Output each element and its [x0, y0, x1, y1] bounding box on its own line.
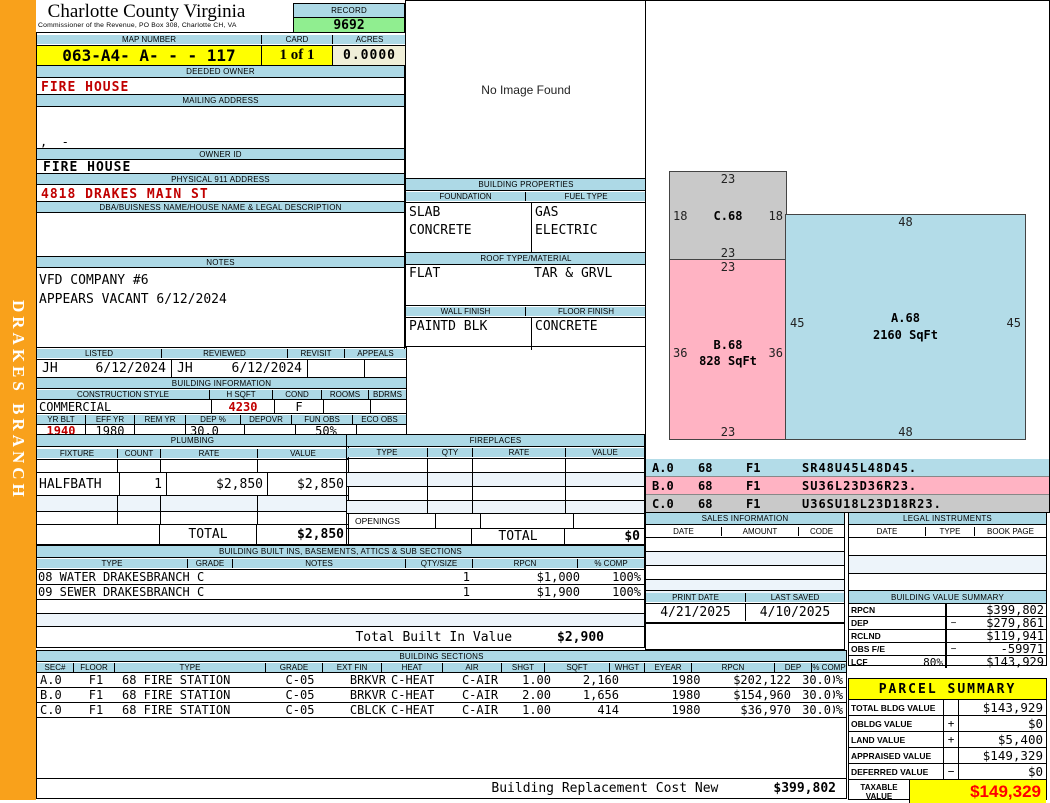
bvs-sign: [947, 604, 960, 616]
built-ins-empty-row: [37, 600, 644, 614]
sketch-a-sqft: 2160 SqFt: [873, 327, 938, 344]
blank-box: [645, 623, 845, 650]
parcel-value: $143,929: [959, 700, 1046, 715]
bs-rpcn: $202,122: [709, 673, 795, 687]
bvs-row: OBS F/E − -59971: [849, 643, 1046, 656]
bvs-label: DEP: [849, 617, 947, 629]
legend-row-a: A.0 68 F1 SR48U45L48D45.: [646, 459, 1049, 477]
dep-pct-label: DEP %: [186, 415, 241, 424]
bvs-row: DEP − $279,861: [849, 617, 1046, 630]
district-sidebar: DRAKES BRANCH: [0, 0, 36, 800]
legend-code: 68: [698, 461, 746, 475]
record-label: RECORD: [293, 3, 405, 18]
revisit-value: [308, 360, 365, 377]
plumbing-fixture: HALFBATH: [37, 473, 120, 495]
last-saved-value: 4/10/2025: [746, 604, 844, 621]
bs-eyear: 1980: [663, 688, 709, 702]
legend-sec: B.0: [646, 479, 698, 493]
wall-finish-label: WALL FINISH: [406, 307, 526, 316]
bs-header-dep: DEP: [775, 663, 812, 672]
bvs-sign: [947, 630, 960, 642]
bvs-label: RPCN: [849, 604, 947, 616]
plumbing-row: HALFBATH 1 $2,850 $2,850: [37, 473, 348, 496]
sketch-b-dim-left: 36: [673, 346, 687, 360]
parcel-row: OBLDG VALUE + $0: [849, 716, 1046, 732]
bs-header-floor: FLOOR: [74, 663, 115, 672]
parcel-sign: [944, 748, 959, 763]
bvs-value: $119,941: [960, 630, 1046, 642]
legal-empty-row: [849, 556, 1046, 574]
built-ins-total-value: $2,900: [557, 630, 644, 645]
notes-line-2: APPEARS VACANT 6/12/2024: [39, 290, 402, 309]
parcel-label: LAND VALUE: [849, 732, 944, 747]
parcel-label: DEFERRED VALUE: [849, 764, 944, 779]
legend-row-c: C.0 68 F1 U36SU18L23D18R23.: [646, 495, 1049, 512]
bs-shgt: 1.00: [509, 703, 555, 717]
mailing-address-value: , -: [40, 135, 69, 149]
sketch-a-name: A.68: [873, 310, 938, 327]
roof-type-value: FLAT: [406, 265, 531, 305]
cond-label: COND: [273, 390, 322, 399]
parcel-row: TOTAL BLDG VALUE $143,929: [849, 700, 1046, 716]
bvs-sign: −: [947, 643, 960, 655]
acres-label: ACRES: [333, 35, 406, 44]
fireplaces-empty-row: [347, 487, 644, 501]
foundation-label: FOUNDATION: [406, 192, 526, 201]
floor-finish-value: CONCRETE: [532, 318, 646, 350]
built-ins-row: 08 WATER DRAKESBRANCH C 1 $1,000 100%: [37, 570, 644, 585]
fireplaces-total-row: TOTAL $0: [347, 529, 644, 544]
built-ins-total-label: Total Built In Value: [355, 630, 512, 645]
review-section: LISTED REVIEWED REVISIT APPEALS JH 6/12/…: [36, 347, 407, 379]
plumbing-rate: $2,850: [167, 473, 268, 495]
bvs-row: LCF 80% $143,929: [849, 656, 1046, 668]
bs-sqft: 2,160: [555, 673, 629, 687]
bs-dep: 30.0: [795, 703, 833, 717]
bvs-value: -59971: [960, 643, 1046, 655]
parcel-summary-title: PARCEL SUMMARY: [849, 679, 1046, 700]
bs-sec: B.0: [37, 688, 76, 702]
legal-header-bookpage: BOOK PAGE: [975, 527, 1046, 536]
fireplaces-header-value: VALUE: [566, 448, 644, 457]
reviewed-by: JH: [177, 361, 193, 376]
commissioner-line: Commissioner of the Revenue, PO Box 308,…: [36, 22, 257, 29]
map-card-acres: MAP NUMBER CARD ACRES 063-A4- A- - - 117…: [36, 32, 407, 67]
mailing-address-label: MAILING ADDRESS: [36, 94, 405, 107]
building-sections-title: BUILDING SECTIONS: [37, 651, 846, 662]
plumbing-empty-row: [37, 512, 348, 525]
sales-header-code: CODE: [799, 527, 844, 536]
built-ins-empty-row: [37, 614, 644, 627]
sales-empty-row: [646, 566, 844, 580]
revisit-label: REVISIT: [288, 349, 345, 358]
built-ins-comp: 100%: [586, 585, 644, 599]
bs-row-c: C.0 F1 68 FIRE STATION C-05 CBLCK C-HEAT…: [37, 703, 846, 718]
built-ins-total-row: Total Built In Value $2,900: [37, 627, 644, 647]
legal-instruments-table: LEGAL INSTRUMENTS DATE TYPE BOOK PAGE: [848, 512, 1047, 592]
legal-empty-row: [849, 538, 1046, 556]
sketch-a-dim-top: 48: [898, 215, 912, 229]
bs-air: C-AIR: [451, 673, 509, 687]
sales-empty-row: [646, 538, 844, 552]
legend-floor: F1: [746, 479, 802, 493]
sketch-panel: 23 23 18 18 C.68 23 23 36 36 B.68 828 Sq…: [645, 0, 1050, 461]
building-sections-table: BUILDING SECTIONS SEC# FLOOR TYPE GRADE …: [36, 650, 847, 799]
card-value: 1 of 1: [262, 46, 333, 65]
physical-address-label: PHYSICAL 911 ADDRESS: [36, 173, 405, 185]
legend-code: 68: [698, 497, 746, 511]
legend-floor: F1: [746, 461, 802, 475]
map-number-label: MAP NUMBER: [37, 35, 262, 44]
bs-row-a: A.0 F1 68 FIRE STATION C-05 BRKVR C-HEAT…: [37, 673, 846, 688]
built-ins-header-grade: GRADE: [188, 559, 233, 568]
depovr-label: DEPOVR: [241, 415, 292, 424]
bs-comp: 100%: [833, 703, 846, 717]
wall-finish-value: PAINTD BLK: [406, 318, 532, 350]
dba-label: DBA/BUISNESS NAME/HOUSE NAME & LEGAL DES…: [36, 201, 405, 213]
hsqft-value: 4230: [212, 400, 275, 413]
fuel-value-2: ELECTRIC: [535, 222, 643, 240]
replacement-cost-row: Building Replacement Cost New $399,802: [37, 778, 846, 798]
fireplaces-title: FIREPLACES: [347, 435, 644, 447]
built-ins-rpcn: $1,000: [476, 570, 586, 584]
bs-header-comp: % COMP: [812, 663, 846, 672]
notes-line-1: VFD COMPANY #6: [39, 271, 402, 290]
bs-type: 68 FIRE STATION: [116, 673, 272, 687]
appeals-label: APPEALS: [345, 349, 406, 358]
bs-header-eyear: EYEAR: [645, 663, 692, 672]
bs-floor: F1: [76, 673, 116, 687]
sketch-a-dim-left: 45: [790, 316, 804, 330]
bs-comp: 100%: [833, 688, 846, 702]
sketch-c-dim-right: 18: [769, 209, 783, 223]
deeded-owner-section: DEEDED OWNER FIRE HOUSE: [36, 65, 405, 94]
built-ins-row: 09 SEWER DRAKESBRANCH C 1 $1,900 100%: [37, 585, 644, 600]
cond-value: F: [275, 400, 324, 413]
plumbing-table: PLUMBING FIXTURE COUNT RATE VALUE HALFBA…: [36, 434, 349, 545]
plumbing-total-label: TOTAL: [159, 525, 256, 544]
fireplaces-openings-label: OPENINGS: [347, 514, 436, 528]
bvs-sign: [947, 656, 960, 668]
fireplaces-total-label: TOTAL: [471, 529, 564, 544]
bs-floor: F1: [76, 703, 116, 717]
fireplaces-empty-row: [347, 501, 644, 515]
built-ins-qty: 1: [404, 585, 476, 599]
building-information-title: BUILDING INFORMATION: [37, 378, 406, 389]
fireplaces-total-value: $0: [564, 529, 644, 544]
fuel-value-1: GAS: [535, 204, 643, 222]
sketch-b-dim-bottom: 23: [721, 425, 735, 439]
legend-floor: F1: [746, 497, 802, 511]
building-properties-section: BUILDING PROPERTIES FOUNDATION FUEL TYPE…: [405, 178, 647, 347]
bs-extfin: CBLCK: [328, 703, 388, 717]
bs-shgt: 2.00: [509, 688, 555, 702]
bs-header-sec: SEC#: [37, 663, 74, 672]
plumbing-empty-row: [37, 496, 348, 512]
sales-empty-row: [646, 552, 844, 566]
bs-rpcn: $36,970: [709, 703, 795, 717]
print-info-table: PRINT DATE LAST SAVED 4/21/2025 4/10/202…: [645, 590, 845, 623]
built-ins-table: BUILDING BUILT INS, BASEMENTS, ATTICS & …: [36, 545, 645, 648]
bs-heat: C-HEAT: [388, 703, 451, 717]
sales-information-title: SALES INFORMATION: [646, 513, 844, 525]
parcel-sign: +: [944, 732, 959, 747]
plumbing-total-row: TOTAL $2,850: [37, 525, 348, 544]
county-title: Charlotte County Virginia: [36, 2, 257, 22]
sketch-b-dim-top: 23: [721, 260, 735, 274]
plumbing-value: $2,850: [268, 473, 348, 495]
sketch-section-a: 48 48 45 45 A.68 2160 SqFt: [785, 214, 1026, 440]
bvs-pct: 80%: [923, 656, 945, 668]
sketch-c-dim-bottom: 23: [721, 246, 735, 260]
parcel-row: APPRAISED VALUE $149,329: [849, 748, 1046, 764]
bvs-value: $279,861: [960, 617, 1046, 629]
image-panel: No Image Found: [405, 0, 647, 180]
notes-label: NOTES: [36, 256, 405, 268]
bs-heat: C-HEAT: [388, 673, 451, 687]
built-ins-header-qty: QTY/SIZE: [406, 559, 473, 568]
bs-header-shgt: SHGT: [502, 663, 545, 672]
plumbing-header-value: VALUE: [258, 449, 348, 458]
physical-address-section: PHYSICAL 911 ADDRESS 4818 DRAKES MAIN ST: [36, 173, 405, 201]
taxable-label-1: TAXABLE: [860, 783, 897, 792]
dba-value: [36, 213, 405, 259]
fun-obs-label: FUN OBS: [292, 415, 353, 424]
fireplaces-header-qty: QTY: [428, 448, 473, 457]
bs-comp: 100%: [833, 673, 846, 687]
acres-value: 0.0000: [333, 46, 406, 65]
yr-blt-label: YR BLT: [37, 415, 86, 424]
foundation-value-1: SLAB: [409, 204, 528, 222]
replacement-cost-label: Building Replacement Cost New: [491, 781, 718, 796]
taxable-label-2: VALUE: [866, 792, 893, 801]
sales-header-amount: AMOUNT: [722, 527, 799, 536]
sketch-c-name: C.68: [714, 209, 743, 223]
rooms-label: ROOMS: [322, 390, 369, 399]
bvs-value: $399,802: [960, 604, 1046, 616]
mailing-address-section: MAILING ADDRESS , -: [36, 94, 405, 148]
bs-grade: C-05: [272, 703, 328, 717]
reviewed-date: 6/12/2024: [232, 361, 302, 376]
bs-row-b: B.0 F1 68 FIRE STATION C-05 BRKVR C-HEAT…: [37, 688, 846, 703]
bs-rpcn: $154,960: [709, 688, 795, 702]
sketch-section-b: 23 23 36 36 B.68 828 SqFt: [669, 259, 787, 440]
bs-type: 68 FIRE STATION: [116, 688, 272, 702]
foundation-value-2: CONCRETE: [409, 222, 528, 240]
bs-dep: 30.0: [795, 673, 833, 687]
built-ins-type: 09 SEWER DRAKESBRANCH C: [37, 585, 404, 599]
bs-floor: F1: [76, 688, 116, 702]
bs-sqft: 1,656: [555, 688, 629, 702]
bs-whgt: [629, 703, 663, 717]
hsqft-label: H SQFT: [210, 390, 273, 399]
plumbing-total-value: $2,850: [256, 525, 348, 544]
bdrms-label: BDRMS: [369, 390, 406, 399]
listed-date: 6/12/2024: [96, 361, 166, 376]
listed-by: JH: [42, 361, 58, 376]
parcel-sign: +: [944, 716, 959, 731]
bs-header-type: TYPE: [115, 663, 266, 672]
sketch-legend: A.0 68 F1 SR48U45L48D45. B.0 68 F1 SU36L…: [645, 459, 1050, 513]
roof-label: ROOF TYPE/MATERIAL: [406, 253, 646, 265]
plumbing-count: 1: [120, 473, 167, 495]
parcel-row: LAND VALUE + $5,400: [849, 732, 1046, 748]
reviewed-label: REVIEWED: [162, 349, 288, 358]
bs-whgt: [629, 673, 663, 687]
bs-header-heat: HEAT: [382, 663, 443, 672]
sales-header-date: DATE: [646, 527, 722, 536]
record-box: RECORD 9692: [293, 3, 405, 32]
sketch-section-c: 23 23 18 18 C.68: [669, 171, 787, 261]
sales-information-table: SALES INFORMATION DATE AMOUNT CODE: [645, 512, 845, 592]
bs-dep: 30.0: [795, 688, 833, 702]
sketch-c-dim-top: 23: [721, 172, 735, 186]
built-ins-header-notes: NOTES: [233, 559, 406, 568]
legend-vector: SR48U45L48D45.: [802, 461, 917, 475]
bs-eyear: 1980: [663, 703, 709, 717]
plumbing-header-rate: RATE: [161, 449, 258, 458]
parcel-summary: PARCEL SUMMARY TOTAL BLDG VALUE $143,929…: [848, 678, 1047, 800]
plumbing-header-count: COUNT: [118, 449, 161, 458]
card-label: CARD: [262, 35, 333, 44]
built-ins-title: BUILDING BUILT INS, BASEMENTS, ATTICS & …: [37, 546, 644, 558]
fireplaces-header-rate: RATE: [473, 448, 566, 457]
parcel-label: TOTAL BLDG VALUE: [849, 700, 944, 715]
parcel-value: $0: [959, 764, 1046, 779]
print-date-value: 4/21/2025: [646, 604, 746, 621]
bvs-label: LCF: [851, 657, 868, 667]
bvs-sign: −: [947, 617, 960, 629]
legal-header-type: TYPE: [926, 527, 975, 536]
fireplaces-table: FIREPLACES TYPE QTY RATE VALUE OPENINGS …: [346, 434, 645, 545]
plumbing-empty-row: [37, 460, 348, 473]
owner-id-section: OWNER ID FIRE HOUSE: [36, 148, 405, 173]
county-header: Charlotte County Virginia Commissioner o…: [36, 2, 257, 32]
built-ins-qty: 1: [404, 570, 476, 584]
bs-air: C-AIR: [451, 688, 509, 702]
building-value-summary: BUILDING VALUE SUMMARY RPCN $399,802 DEP…: [848, 590, 1047, 666]
eff-yr-label: EFF YR: [86, 415, 135, 424]
floor-finish-label: FLOOR FINISH: [526, 307, 646, 316]
parcel-sign: −: [944, 764, 959, 779]
fuel-type-label: FUEL TYPE: [526, 192, 646, 201]
last-saved-label: LAST SAVED: [746, 593, 844, 602]
bvs-row: RPCN $399,802: [849, 604, 1046, 617]
sketch-b-sqft: 828 SqFt: [699, 353, 757, 369]
record-number: 9692: [293, 18, 405, 33]
sketch-a-dim-right: 45: [1007, 316, 1021, 330]
replacement-cost-value: $399,802: [773, 781, 846, 796]
bs-shgt: 1.00: [509, 673, 555, 687]
parcel-sign: [944, 700, 959, 715]
sketch-b-name: B.68: [699, 337, 757, 353]
legend-sec: A.0: [646, 461, 698, 475]
bs-sec: C.0: [37, 703, 76, 717]
bs-whgt: [629, 688, 663, 702]
built-ins-comp: 100%: [586, 570, 644, 584]
construction-style-label: CONSTRUCTION STYLE: [37, 390, 210, 399]
sketch-b-dim-right: 36: [769, 346, 783, 360]
owner-id-label: OWNER ID: [36, 148, 405, 160]
parcel-label: OBLDG VALUE: [849, 716, 944, 731]
plumbing-title: PLUMBING: [37, 435, 348, 447]
bvs-label: OBS F/E: [849, 643, 947, 655]
bvs-label: RCLND: [849, 630, 947, 642]
sketch-c-dim-left: 18: [673, 209, 687, 223]
building-value-summary-title: BUILDING VALUE SUMMARY: [849, 591, 1046, 604]
parcel-label: APPRAISED VALUE: [849, 748, 944, 763]
building-properties-title: BUILDING PROPERTIES: [406, 179, 646, 191]
bs-grade: C-05: [272, 688, 328, 702]
built-ins-header-rpcn: RPCN: [473, 559, 578, 568]
bs-sec: A.0: [37, 673, 76, 687]
dba-section: DBA/BUISNESS NAME/HOUSE NAME & LEGAL DES…: [36, 201, 405, 256]
parcel-value: $0: [959, 716, 1046, 731]
sketch-a-dim-bottom: 48: [898, 425, 912, 439]
notes-section: NOTES VFD COMPANY #6 APPEARS VACANT 6/12…: [36, 256, 405, 347]
plumbing-header-fixture: FIXTURE: [37, 449, 118, 458]
deeded-owner-label: DEEDED OWNER: [36, 65, 405, 78]
listed-label: LISTED: [37, 349, 162, 358]
bs-header-extfin: EXT FIN: [323, 663, 382, 672]
bs-extfin: BRKVR: [328, 688, 388, 702]
no-image-message: No Image Found: [481, 83, 570, 97]
parcel-row: DEFERRED VALUE − $0: [849, 764, 1046, 780]
print-date-label: PRINT DATE: [646, 593, 746, 602]
fireplaces-openings-row: OPENINGS: [347, 514, 644, 529]
legal-header-date: DATE: [849, 527, 926, 536]
bs-eyear: 1980: [663, 673, 709, 687]
built-ins-header-comp: % COMP: [578, 559, 644, 568]
construction-style-value: COMMERCIAL: [37, 400, 212, 413]
bvs-row: RCLND $119,941: [849, 630, 1046, 643]
eco-obs-label: ECO OBS: [353, 415, 406, 424]
map-number-value: 063-A4- A- - - 117: [37, 46, 262, 65]
bs-header-air: AIR: [443, 663, 502, 672]
rooms-value: [324, 400, 371, 413]
bs-header-whgt: WHGT: [610, 663, 645, 672]
legend-code: 68: [698, 479, 746, 493]
bs-header-sqft: SQFT: [545, 663, 610, 672]
legend-vector: SU36L23D36R23.: [802, 479, 917, 493]
parcel-value: $149,329: [959, 748, 1046, 763]
fireplaces-header-type: TYPE: [347, 448, 428, 457]
bs-type: 68 FIRE STATION: [116, 703, 272, 717]
bs-extfin: BRKVR: [328, 673, 388, 687]
built-ins-type: 08 WATER DRAKESBRANCH C: [37, 570, 404, 584]
parcel-value: $5,400: [959, 732, 1046, 747]
bs-heat: C-HEAT: [388, 688, 451, 702]
roof-material-value: TAR & GRVL: [531, 265, 646, 305]
built-ins-rpcn: $1,900: [476, 585, 586, 599]
bs-air: C-AIR: [451, 703, 509, 717]
built-ins-header-type: TYPE: [37, 559, 188, 568]
bs-sqft: 414: [555, 703, 629, 717]
legal-instruments-title: LEGAL INSTRUMENTS: [849, 513, 1046, 525]
fireplaces-empty-row: [347, 459, 644, 473]
bvs-value: $143,929: [960, 656, 1046, 668]
legend-sec: C.0: [646, 497, 698, 511]
rem-yr-label: REM YR: [135, 415, 186, 424]
bs-header-rpcn: RPCN: [692, 663, 775, 672]
fireplaces-empty-row: [347, 473, 644, 487]
legend-vector: U36SU18L23D18R23.: [802, 497, 942, 511]
building-information-section: BUILDING INFORMATION CONSTRUCTION STYLE …: [36, 377, 407, 436]
appeals-value: [365, 360, 406, 377]
bdrms-value: [371, 400, 406, 413]
bs-header-grade: GRADE: [266, 663, 323, 672]
district-name: DRAKES BRANCH: [8, 300, 28, 501]
